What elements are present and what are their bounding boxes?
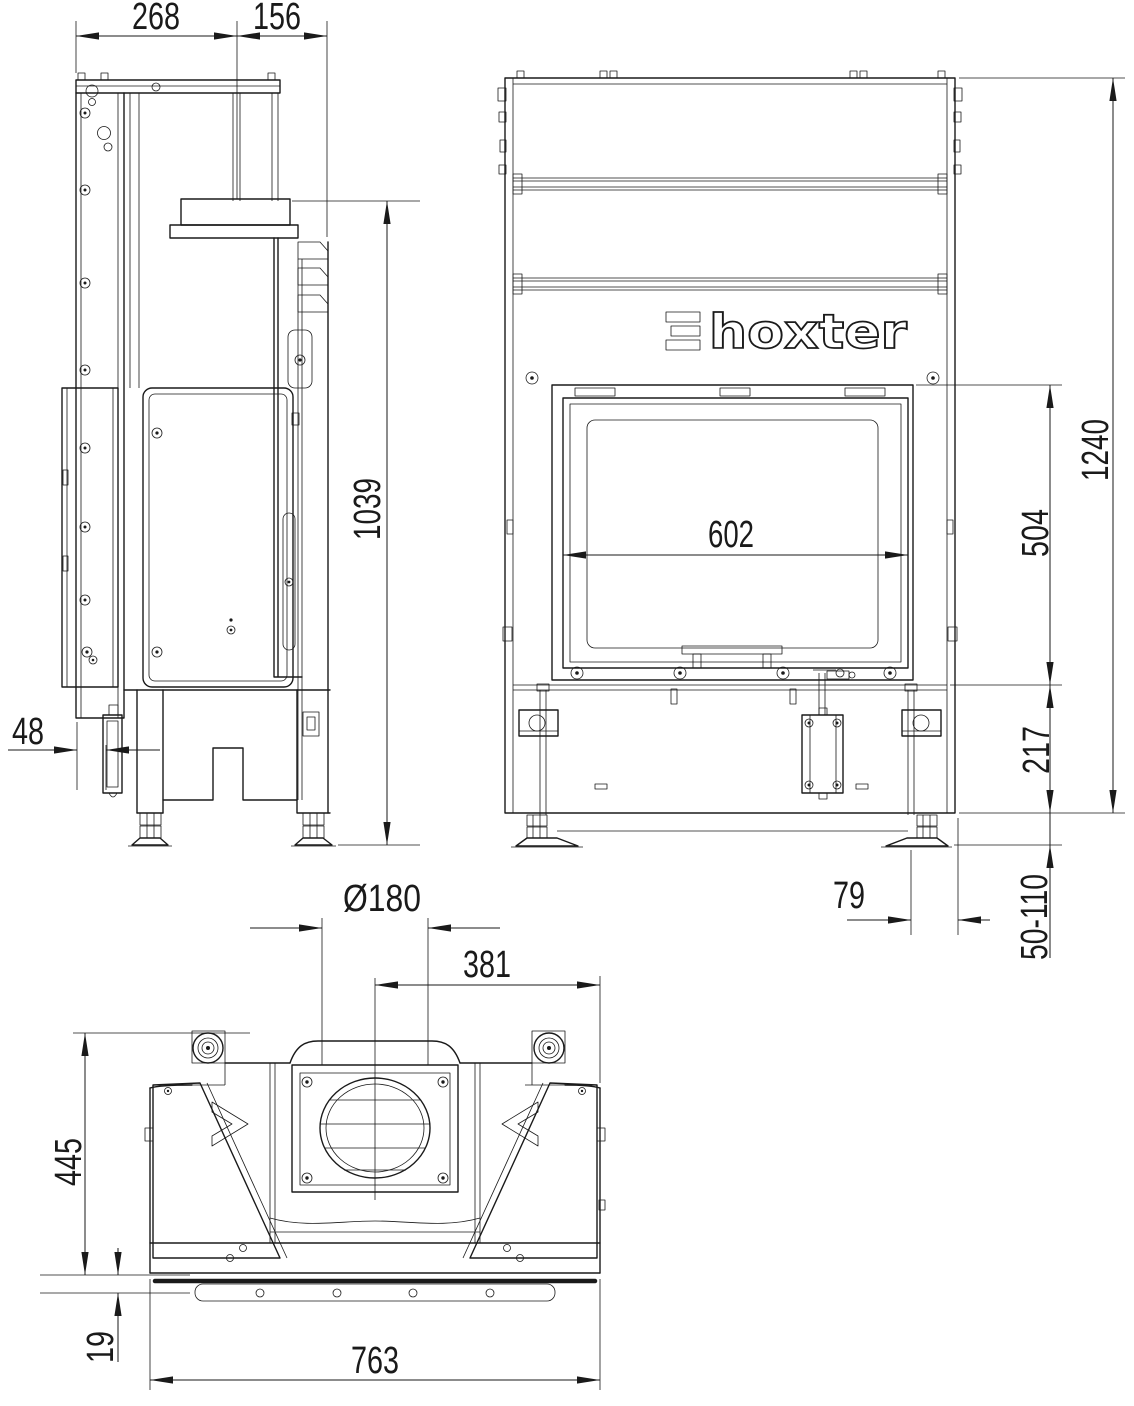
- dim-label-156: 156: [253, 0, 301, 38]
- dim-front-504: 504: [916, 385, 1062, 685]
- side-front-column-upper: [233, 93, 278, 201]
- dim-front-602: 602: [563, 514, 908, 556]
- dim-label-268: 268: [132, 0, 180, 38]
- dim-label-50-110: 50-110: [1014, 874, 1056, 960]
- dim-label-763: 763: [351, 1340, 399, 1382]
- side-rear-panel: [62, 388, 118, 687]
- dim-top-19: 19: [40, 1248, 190, 1363]
- top-bottom-plate: [155, 1281, 595, 1301]
- triple-bar-icon: [666, 312, 700, 350]
- side-front-edge: [274, 238, 328, 813]
- dim-top-381: 381: [375, 944, 600, 1083]
- dim-label-602: 602: [708, 514, 754, 556]
- dim-side-1039: 1039: [292, 201, 420, 845]
- dim-label-1039: 1039: [347, 478, 389, 540]
- dim-front-1240: 1240: [959, 78, 1125, 813]
- dim-top-763: 763: [150, 1279, 600, 1390]
- top-flue-flange: [292, 1040, 458, 1200]
- brand-logo: hoxter: [666, 305, 908, 360]
- top-rollers: [192, 1031, 565, 1063]
- dim-label-19: 19: [80, 1331, 122, 1363]
- dim-front-217: 217: [1016, 685, 1058, 813]
- dim-label-79: 79: [833, 875, 865, 917]
- dim-label-1240: 1240: [1075, 419, 1117, 481]
- log-retainer: [682, 646, 782, 654]
- side-view: 268 156 1039 48: [8, 0, 420, 846]
- brand-logo-text: hoxter: [709, 305, 908, 360]
- dim-label-48: 48: [12, 711, 44, 753]
- side-firebox-panel: [143, 388, 293, 687]
- dim-label-flue-diameter: Ø180: [343, 878, 421, 920]
- technical-drawing-page: 268 156 1039 48: [0, 0, 1134, 1406]
- side-base-legs: [124, 690, 336, 846]
- top-view: Ø180 381 445 19 763: [40, 878, 605, 1390]
- front-view: hoxter: [498, 71, 1125, 960]
- side-back-column: [76, 85, 124, 718]
- side-ledge: [170, 199, 328, 312]
- dim-front-79: 79: [833, 818, 990, 935]
- fireplace-dimension-drawing: 268 156 1039 48: [0, 0, 1134, 1406]
- dim-label-445: 445: [48, 1138, 90, 1186]
- dim-label-504: 504: [1015, 509, 1057, 557]
- front-body: [498, 71, 962, 813]
- dim-top-445: 445: [40, 1033, 250, 1275]
- dim-front-50-110: 50-110: [954, 813, 1062, 960]
- front-rails: [513, 174, 947, 294]
- side-top-plate: [76, 73, 280, 93]
- front-base: [511, 671, 952, 847]
- side-inner-column: [130, 93, 139, 388]
- dim-label-381: 381: [463, 944, 511, 986]
- dim-label-217: 217: [1016, 726, 1058, 774]
